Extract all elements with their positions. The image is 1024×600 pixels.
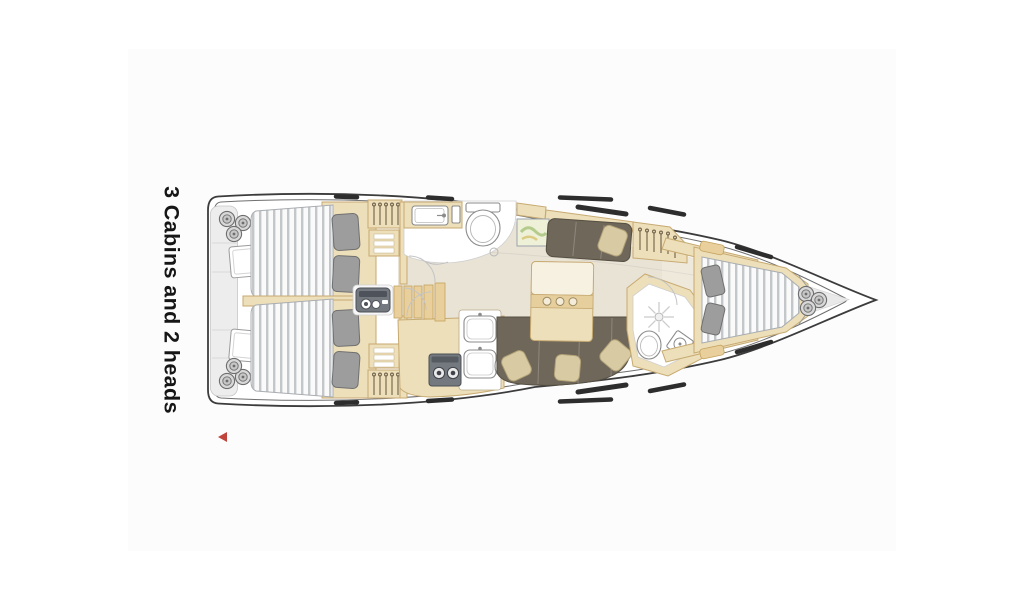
bed-mattress bbox=[251, 205, 333, 303]
wardrobe-port bbox=[368, 200, 402, 256]
companionway-steps bbox=[394, 283, 445, 321]
carousel-prev-icon[interactable] bbox=[218, 432, 227, 442]
chart-map bbox=[517, 219, 549, 246]
page: 3 Cabins and 2 heads bbox=[0, 0, 1024, 600]
sofa-pillow bbox=[554, 354, 581, 382]
pillow bbox=[332, 351, 360, 389]
stove-icon bbox=[429, 354, 461, 386]
boat-floorplan-drawing bbox=[0, 0, 1024, 600]
shower-icon bbox=[644, 302, 674, 332]
salon-table bbox=[530, 261, 593, 341]
pillow bbox=[332, 213, 360, 251]
engine-panel bbox=[353, 285, 393, 315]
bed-mattress bbox=[251, 299, 333, 397]
floorplan-title: 3 Cabins and 2 heads bbox=[159, 186, 184, 414]
cabinet bbox=[452, 206, 460, 223]
galley bbox=[398, 310, 504, 397]
